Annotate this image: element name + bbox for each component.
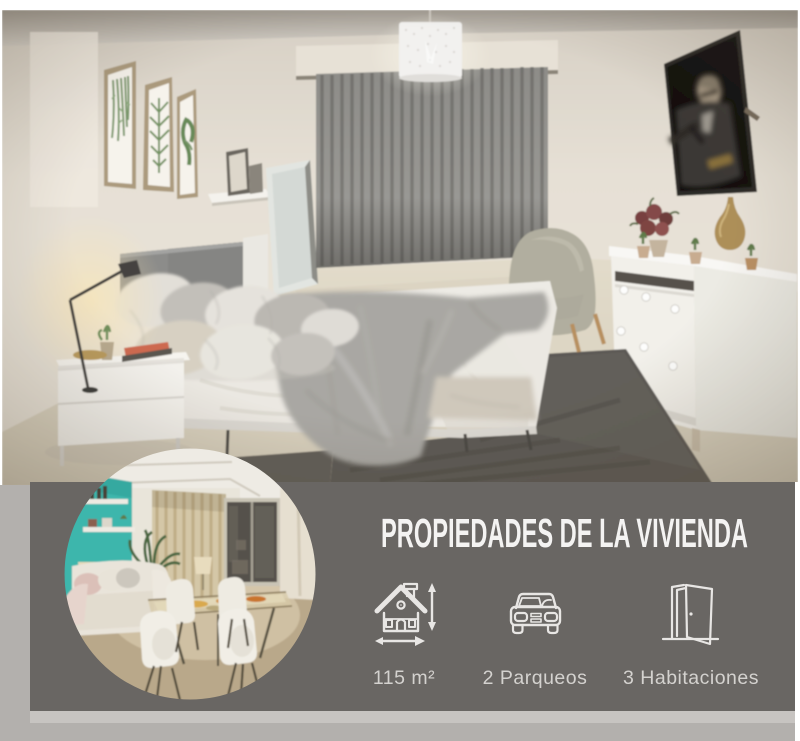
svg-text:2 Parqueos: 2 Parqueos — [483, 667, 588, 689]
svg-text:115 m²: 115 m² — [373, 667, 435, 689]
svg-text:PROPIEDADES DE LA VIVIENDA: PROPIEDADES DE LA VIVIENDA — [381, 510, 748, 556]
svg-text:3 Habitaciones: 3 Habitaciones — [623, 667, 759, 689]
